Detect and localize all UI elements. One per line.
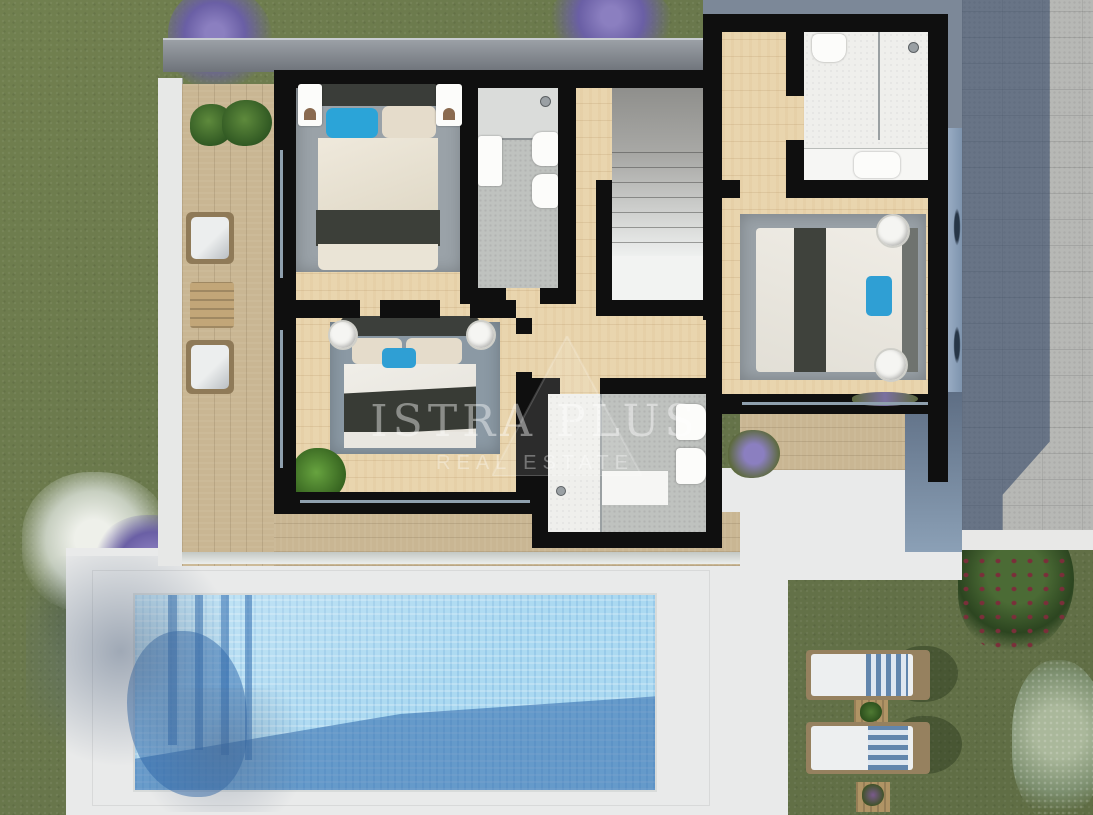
bed-duvet [318, 138, 438, 212]
staircase-steps [612, 152, 703, 256]
nightstand [298, 84, 322, 126]
outdoor-armchair [186, 340, 234, 394]
outdoor-armchair [186, 212, 234, 264]
shower-fixture-icon [556, 486, 566, 496]
wall-bathroom-bottom-right [706, 316, 722, 548]
bed-headboard [318, 84, 438, 106]
bedside-lamp [874, 348, 908, 382]
window-glass [280, 150, 283, 278]
flat-roof-edge-right-wing [703, 0, 962, 14]
bed-foot [318, 244, 438, 270]
bathroom-sink [478, 136, 502, 186]
floor-plan-canvas: ISTRA PLUS REAL ESTATE [0, 0, 1093, 815]
wall-top-right-wing [703, 14, 948, 32]
nightstand-lamp-icon [443, 108, 455, 120]
wall-bathroom-top-left [460, 88, 478, 304]
olive-tree [1012, 660, 1093, 815]
wall-bedroom-middle-right [516, 318, 532, 334]
bed-pillow-blue [866, 276, 892, 316]
table-plant [860, 702, 882, 722]
shower-head-icon [540, 96, 551, 107]
stair-lower-landing [612, 256, 703, 302]
wall-bathroom-right-left [786, 32, 804, 96]
bed-blanket-dark [794, 228, 826, 372]
shower-glass-panel [878, 32, 880, 140]
lounger-side-table [856, 782, 890, 812]
bed-blanket-dark [316, 210, 440, 246]
bedside-lamp [328, 320, 358, 350]
bed-pillow-blue [326, 108, 378, 138]
window-glass [742, 402, 928, 405]
wall-stair-left [596, 180, 612, 316]
vanity-sink [854, 152, 900, 178]
bed-headboard [902, 228, 918, 372]
nightstand [436, 84, 462, 126]
bed-pillow-blue [382, 348, 416, 368]
watermark-logo-triangle [492, 336, 642, 476]
bed-foot [344, 432, 476, 448]
wall-bedroom-middle-top [380, 300, 440, 318]
sun-lounger [806, 650, 930, 700]
wall-bathroom-right-left [786, 140, 804, 180]
bed-blanket-dark [344, 387, 476, 436]
armchair-cushion [191, 217, 229, 259]
terrace-glass-railing [182, 552, 740, 564]
wall-bathroom-top-bottom [540, 288, 576, 304]
bidet [676, 448, 706, 484]
sun-lounger [806, 722, 930, 774]
wall-bottom-window-band [274, 492, 548, 514]
bidet [532, 174, 558, 208]
outdoor-side-table [190, 282, 234, 328]
wall-stair-bottom [612, 300, 722, 316]
flat-roof-edge [163, 38, 705, 72]
wall-stair-wing [703, 14, 722, 320]
wall-bedroom-right-top [786, 180, 948, 198]
wall-bathroom-bottom-bottom [532, 532, 722, 548]
terrace-railing-frame [158, 78, 183, 566]
window-glass [280, 330, 283, 468]
toilet [676, 404, 706, 440]
toilet [532, 132, 558, 166]
wall-bedroom-middle-top [274, 300, 360, 318]
armchair-cushion [191, 345, 229, 389]
wall-bedroom-right-top [722, 180, 740, 198]
bed-headboard [340, 316, 480, 336]
lounger-towel [866, 654, 908, 696]
wall-bedroom-middle-top [470, 300, 516, 318]
table-plant [862, 784, 884, 806]
bed-pillow [382, 106, 436, 138]
window-glass [300, 500, 530, 503]
stair-landing [612, 88, 703, 152]
wall-bathroom-top-right [558, 88, 576, 304]
tree-shadow-on-deck [118, 688, 328, 812]
toilet [812, 34, 846, 62]
shower-head-icon [908, 42, 919, 53]
bedside-lamp [876, 214, 910, 248]
nightstand-lamp-icon [304, 108, 316, 120]
lounger-towel [868, 726, 908, 770]
white-curb [955, 530, 1093, 550]
